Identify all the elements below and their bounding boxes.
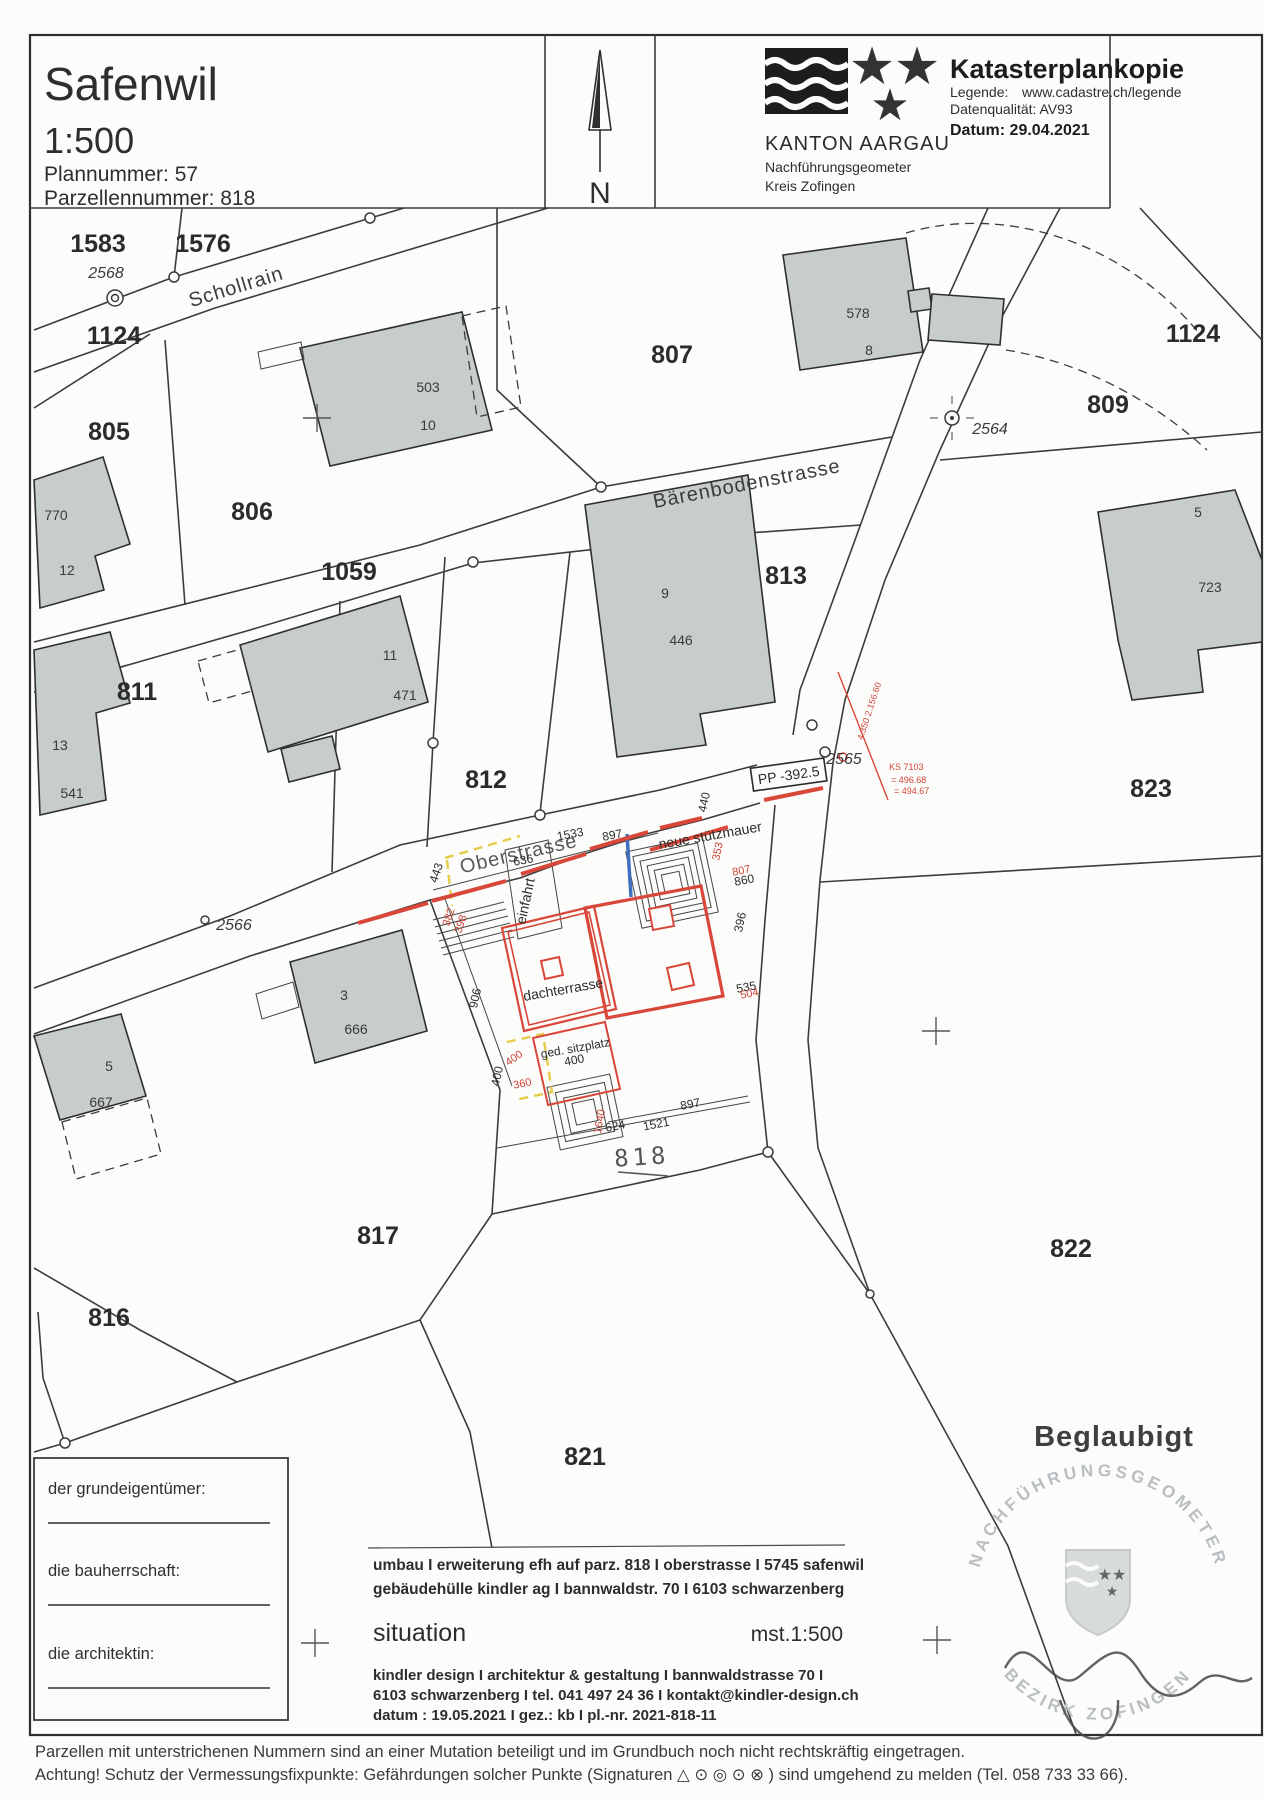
point-label-2565: 2565 bbox=[825, 751, 862, 768]
canton-name: KANTON AARGAU bbox=[765, 133, 950, 155]
project-line-2: gebäudehülle kindler ag I bannwaldstr. 7… bbox=[373, 1581, 844, 1598]
annotation-dachterrasse: dachterrasse bbox=[522, 974, 605, 1004]
building-503 bbox=[300, 312, 492, 466]
building-label-9: 9 bbox=[661, 585, 669, 601]
form-label-architect: die architektin: bbox=[48, 1645, 154, 1663]
annotation-einfahrt: einfahrt bbox=[512, 876, 537, 925]
dim-red-504: 504 bbox=[739, 986, 759, 1001]
cadastral-plan-page: Safenwil 1:500 Plannummer: 57 Parzellenn… bbox=[0, 0, 1264, 1799]
project-line-1: umbau I erweiterung efh auf parz. 818 I … bbox=[373, 1557, 864, 1574]
plan-number: Plannummer: 57 bbox=[44, 163, 198, 186]
building-471 bbox=[240, 596, 428, 752]
street-parcel-1533: 1533 bbox=[556, 825, 585, 844]
building-label-666: 666 bbox=[344, 1021, 368, 1037]
building-446 bbox=[585, 475, 775, 757]
form-label-owner: der grundeigentümer: bbox=[48, 1480, 206, 1498]
building-723 bbox=[1098, 490, 1262, 700]
footer-note-1: Parzellen mit unterstrichenen Nummern si… bbox=[35, 1743, 965, 1761]
point-label-2568: 2568 bbox=[87, 265, 124, 282]
plan-date: Datum: 29.04.2021 bbox=[950, 122, 1090, 139]
point-label-2564: 2564 bbox=[971, 421, 1008, 438]
surveyor-stamp: NACHFÜHRUNGSGEOMETER BEZIRK ZOFINGEN ★★ … bbox=[965, 1461, 1252, 1739]
stamp-shield-icon: ★★ ★ bbox=[1066, 1550, 1130, 1635]
dim-396: 396 bbox=[731, 911, 749, 934]
parcel-label-1576: 1576 bbox=[175, 230, 231, 258]
building-label-5b: 5 bbox=[105, 1058, 113, 1074]
building-label-8: 8 bbox=[865, 342, 873, 358]
building-666 bbox=[290, 930, 427, 1063]
fixpoint-icon bbox=[107, 290, 123, 306]
building-label-541: 541 bbox=[60, 785, 84, 801]
building-label-10: 10 bbox=[420, 417, 436, 433]
parcel-label-807: 807 bbox=[651, 341, 693, 369]
footer-notes: Parzellen mit unterstrichenen Nummern si… bbox=[35, 1743, 1128, 1784]
dim-906: 906 bbox=[466, 987, 484, 1010]
point-label-2566: 2566 bbox=[215, 917, 252, 934]
parcel-label-816: 816 bbox=[88, 1304, 130, 1332]
architect-title-block: umbau I erweiterung efh auf parz. 818 I … bbox=[365, 1545, 879, 1730]
building-label-667: 667 bbox=[89, 1094, 113, 1110]
blue-survey-line bbox=[627, 834, 631, 897]
building-label-12: 12 bbox=[59, 562, 75, 578]
document-title: Katasterplankopie bbox=[950, 54, 1184, 84]
building-label-13: 13 bbox=[52, 737, 68, 753]
annotation-survey: 4.350 2.156.60 bbox=[855, 681, 883, 741]
form-label-client: die bauherrschaft: bbox=[48, 1562, 180, 1580]
existing-building-818 bbox=[585, 886, 723, 1018]
svg-text:★★: ★★ bbox=[1098, 1567, 1127, 1584]
parcel-label-821: 821 bbox=[564, 1443, 606, 1471]
north-arrow-icon: N bbox=[589, 50, 611, 210]
annotation-elev1: = 496.68 bbox=[891, 775, 926, 785]
dim-897b: 897 bbox=[679, 1095, 702, 1113]
parcel-label-811: 811 bbox=[117, 678, 157, 706]
building-label-578: 578 bbox=[846, 305, 870, 321]
legend-label: Legende: bbox=[950, 84, 1008, 100]
drawing-title: situation bbox=[373, 1619, 466, 1647]
building-label-471: 471 bbox=[393, 687, 417, 703]
building-label-446: 446 bbox=[669, 632, 693, 648]
title-block: Safenwil 1:500 Plannummer: 57 Parzellenn… bbox=[44, 58, 255, 210]
building-label-11: 11 bbox=[383, 647, 398, 663]
certified-label: Beglaubigt bbox=[1034, 1421, 1194, 1453]
dim-red-400: 400 bbox=[503, 1048, 525, 1068]
dim-400v: 400 bbox=[488, 1065, 506, 1088]
building-label-3: 3 bbox=[340, 987, 348, 1003]
star-icon: ★ bbox=[870, 81, 909, 130]
building-footprints bbox=[34, 238, 1262, 1179]
parcel-label-813: 813 bbox=[765, 562, 807, 590]
annotation-elev2: = 494.67 bbox=[894, 786, 929, 796]
legend-url[interactable]: www.cadastre.ch/legende bbox=[1021, 84, 1182, 100]
building-label-723: 723 bbox=[1198, 579, 1222, 595]
svg-text:★: ★ bbox=[1106, 1583, 1119, 1599]
data-quality: Datenqualität: AV93 bbox=[950, 101, 1073, 117]
firm-line-2: 6103 schwarzenberg I tel. 041 497 24 36 … bbox=[373, 1687, 859, 1704]
street-label-schollrain: Schollrain bbox=[186, 262, 286, 312]
parcel-label-1059: 1059 bbox=[321, 558, 377, 586]
boundary-points bbox=[60, 213, 974, 1448]
north-letter: N bbox=[589, 177, 611, 210]
parcel-label-818: 818 bbox=[613, 1141, 670, 1173]
building-label-503: 503 bbox=[416, 379, 440, 395]
parcel-number: Parzellennummer: 818 bbox=[44, 187, 255, 210]
dim-636: 636 bbox=[512, 851, 535, 869]
dim-1521: 1521 bbox=[642, 1115, 671, 1134]
footer-note-2: Achtung! Schutz der Vermessungsfixpunkte… bbox=[35, 1766, 1128, 1784]
building-770 bbox=[34, 457, 130, 608]
dim-624: 624 bbox=[604, 1117, 627, 1135]
firm-line-1: kindler design I architektur & gestaltun… bbox=[373, 1667, 823, 1684]
parcel-label-1583: 1583 bbox=[70, 230, 126, 258]
fixpoint-icon bbox=[930, 396, 974, 440]
dim-red-360: 360 bbox=[512, 1076, 532, 1091]
municipality-title: Safenwil bbox=[44, 58, 218, 110]
parcel-label-1124b: 1124 bbox=[1166, 320, 1220, 348]
parcel-label-809: 809 bbox=[1087, 391, 1129, 419]
parcel-label-806: 806 bbox=[231, 498, 273, 526]
office-line2: Kreis Zofingen bbox=[765, 178, 855, 194]
parcel-label-805: 805 bbox=[88, 418, 130, 446]
parcel-label-817: 817 bbox=[357, 1222, 399, 1250]
annotation-ks: KS 7103 bbox=[889, 762, 924, 772]
canton-logo: ★ ★ ★ KANTON AARGAU Nachführungsgeometer… bbox=[765, 38, 950, 194]
annotation-pp-box: PP -392.5 bbox=[750, 758, 826, 791]
dim-red-353: 353 bbox=[710, 841, 726, 861]
retaining-wall-steps-south bbox=[547, 1074, 623, 1150]
plan-canvas: Safenwil 1:500 Plannummer: 57 Parzellenn… bbox=[0, 0, 1264, 1799]
dim-443: 443 bbox=[426, 861, 446, 885]
parcel-label-822: 822 bbox=[1050, 1235, 1092, 1263]
owner-form-box: der grundeigentümer: die bauherrschaft: … bbox=[34, 1458, 288, 1720]
plan-scale: 1:500 bbox=[44, 120, 134, 161]
dim-440: 440 bbox=[695, 791, 713, 814]
office-line1: Nachführungsgeometer bbox=[765, 159, 912, 175]
building-label-5a: 5 bbox=[1194, 504, 1202, 520]
drawing-scale: mst.1:500 bbox=[751, 1623, 843, 1646]
firm-line-3: datum : 19.05.2021 I gez.: kb I pl.-nr. … bbox=[373, 1707, 717, 1724]
building-578 bbox=[783, 238, 923, 370]
parcel-label-812: 812 bbox=[465, 766, 507, 794]
document-header: Katasterplankopie Legende: www.cadastre.… bbox=[950, 54, 1184, 139]
parcel-label-823: 823 bbox=[1130, 775, 1172, 803]
red-wall-lines bbox=[358, 788, 823, 923]
parcel-label-1124a: 1124 bbox=[87, 322, 141, 350]
building-label-770: 770 bbox=[44, 507, 68, 523]
